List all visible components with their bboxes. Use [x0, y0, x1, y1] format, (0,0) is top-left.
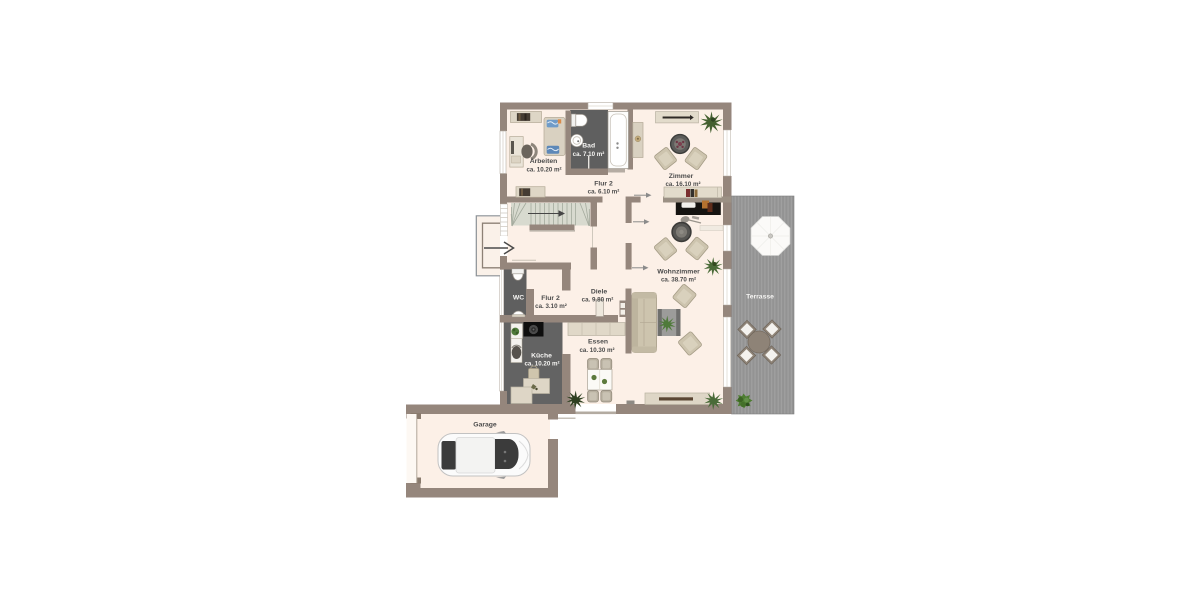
svg-text:ca. 38.70 m²: ca. 38.70 m²: [661, 277, 696, 284]
svg-text:ca. 9.80 m²: ca. 9.80 m²: [582, 297, 614, 304]
svg-text:ca. 10.20 m²: ca. 10.20 m²: [526, 167, 561, 174]
svg-text:Terrasse: Terrasse: [746, 294, 774, 301]
svg-text:Flur 2: Flur 2: [541, 295, 560, 302]
svg-text:Diele: Diele: [591, 289, 607, 296]
svg-text:WC: WC: [513, 295, 524, 302]
svg-text:Garage: Garage: [473, 422, 497, 429]
svg-text:ca. 6.10 m²: ca. 6.10 m²: [588, 189, 620, 196]
svg-text:ca. 10.20 m²: ca. 10.20 m²: [524, 361, 559, 368]
svg-text:ca. 10.30 m²: ca. 10.30 m²: [579, 347, 614, 354]
svg-text:Küche: Küche: [531, 353, 552, 360]
svg-text:Zimmer: Zimmer: [669, 173, 694, 180]
svg-text:Bad: Bad: [582, 143, 595, 150]
svg-text:Flur 2: Flur 2: [594, 181, 613, 188]
svg-text:Wohnzimmer: Wohnzimmer: [657, 269, 700, 276]
svg-text:ca. 7.10 m²: ca. 7.10 m²: [573, 151, 605, 158]
svg-text:Arbeiten: Arbeiten: [530, 158, 558, 165]
svg-text:ca. 3.10 m²: ca. 3.10 m²: [535, 303, 567, 310]
svg-text:Essen: Essen: [588, 339, 608, 346]
